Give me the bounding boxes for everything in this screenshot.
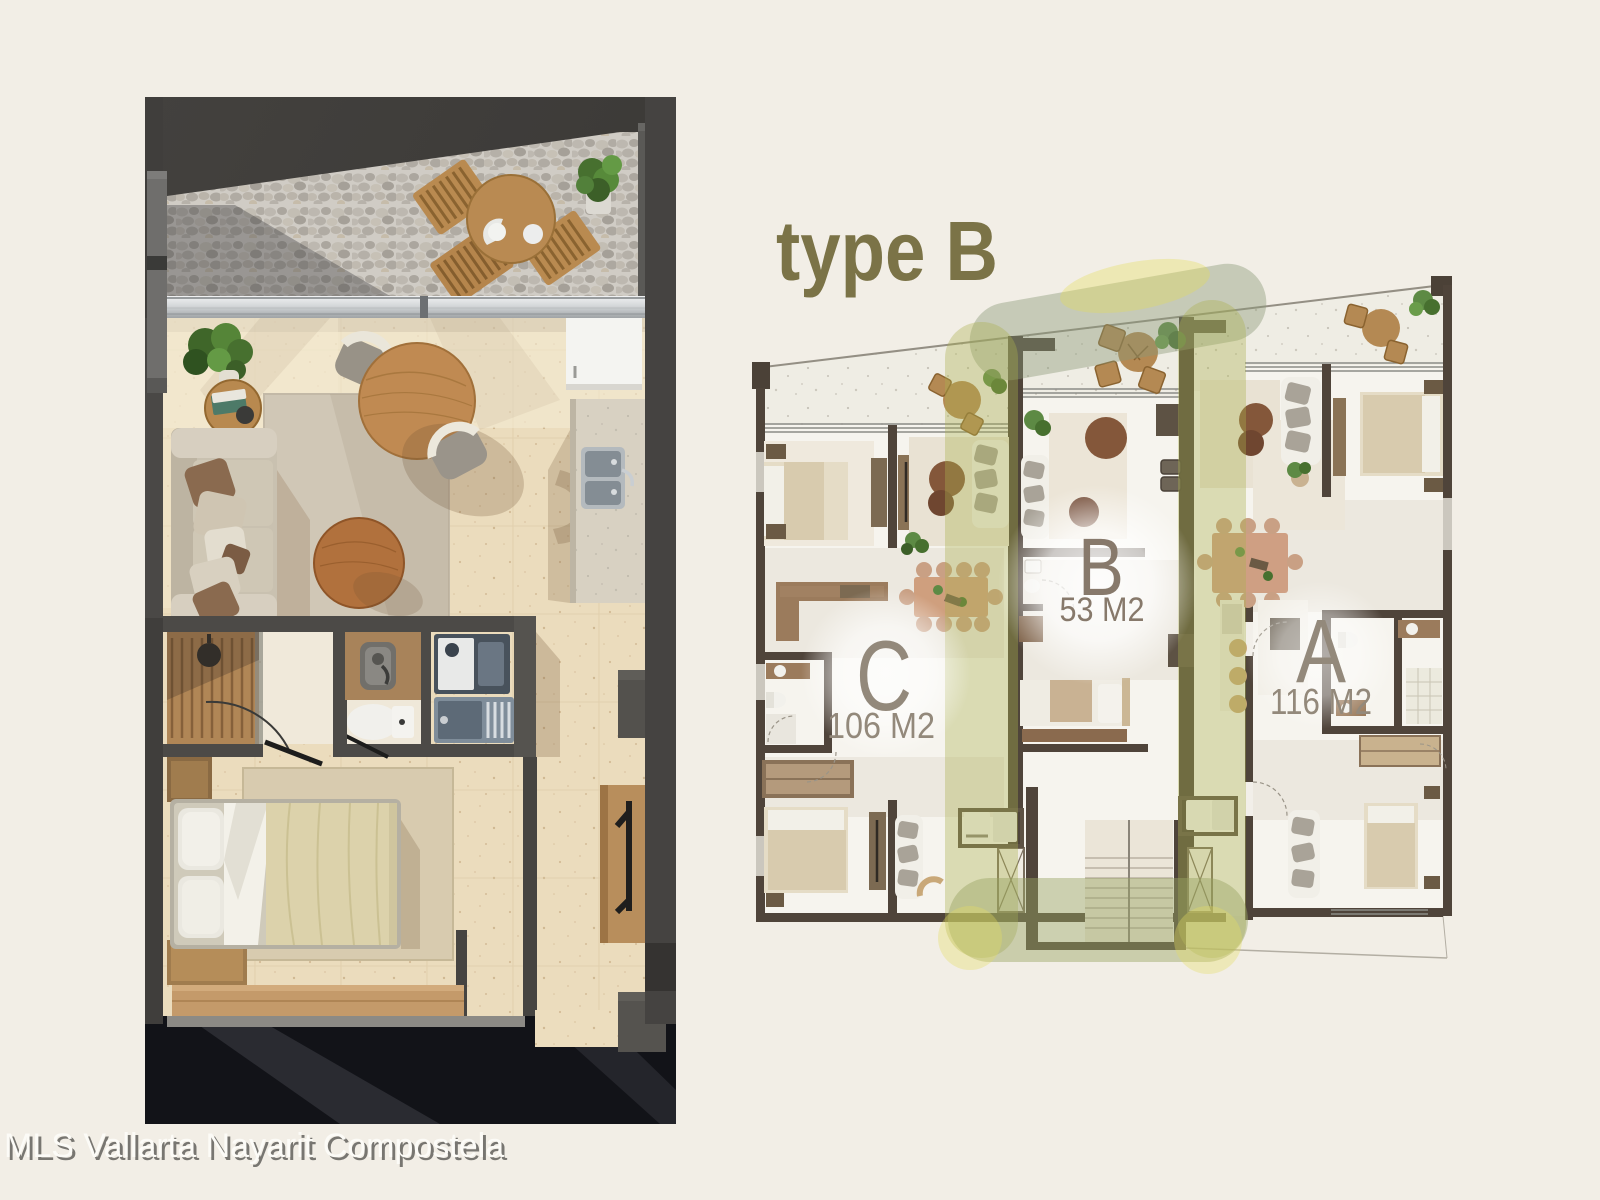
svg-text:106 M2: 106 M2 [827, 705, 935, 746]
svg-text:MLS Vallarta Nayarit Compostel: MLS Vallarta Nayarit Compostela [4, 1127, 504, 1165]
svg-text:type B: type B [776, 204, 998, 298]
svg-text:116 M2: 116 M2 [1270, 681, 1372, 722]
svg-text:53 M2: 53 M2 [1060, 591, 1145, 629]
